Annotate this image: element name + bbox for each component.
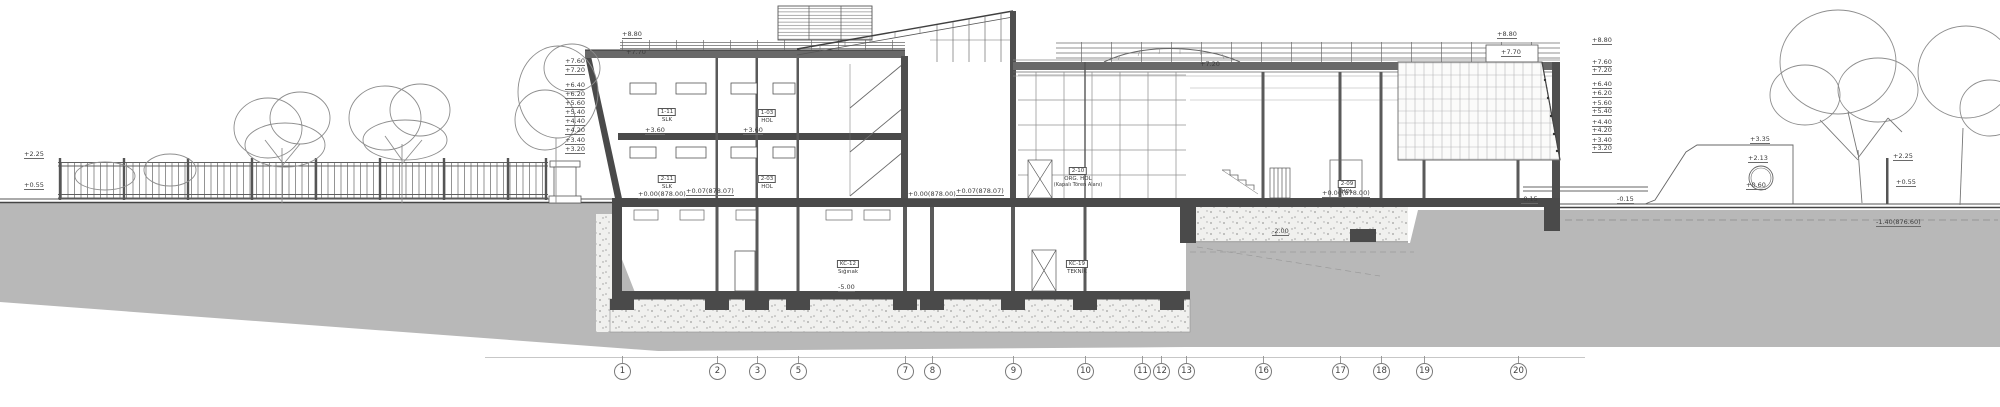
elevation-label-left: +4.40 — [565, 118, 585, 126]
level-annotation: +0.07(878.07) — [686, 188, 734, 196]
level-annotation: +7.70 — [1501, 49, 1521, 57]
room-name: SLK — [658, 184, 676, 190]
grid-leader-stub — [1518, 356, 1519, 363]
level-annotation-text: -5.00 — [838, 284, 855, 292]
elevation-label-left: +6.20 — [565, 91, 585, 99]
elevation-label-left: +4.20 — [565, 127, 585, 135]
level-annotation-text: -0.15 — [1521, 196, 1538, 204]
level-annotation: +8.80 — [1497, 31, 1517, 39]
elevation-label-left-text: +5.60 — [565, 100, 585, 108]
room-name: HOL — [758, 118, 776, 124]
elevation-label-right: +4.20 — [1592, 127, 1612, 135]
room-name: HOL — [1338, 189, 1356, 195]
elevation-label-left-text: +5.40 — [565, 109, 585, 117]
level-annotation: +3.35 — [1750, 136, 1770, 144]
grid-bubble: 11 — [1134, 363, 1151, 380]
level-annotation: +7.70 — [626, 49, 646, 57]
room-label: 2-03HOL — [758, 166, 776, 191]
level-annotation: +0.00(878.00) — [908, 191, 956, 199]
grid-bubble: 5 — [790, 363, 807, 380]
elevation-label-right-text: +5.40 — [1592, 108, 1612, 116]
elevation-label-left: +5.60 — [565, 100, 585, 108]
elevation-label-left-text: +4.20 — [565, 127, 585, 135]
elevation-label-right: +6.40 — [1592, 81, 1612, 89]
level-annotation-text: +2.25 — [24, 151, 44, 159]
grid-leader-stub — [622, 356, 623, 363]
grid-bubble: 7 — [897, 363, 914, 380]
elevation-label-left: +3.20 — [565, 146, 585, 154]
level-annotation: +2.25 — [24, 151, 44, 159]
room-name: SLK — [658, 117, 676, 123]
grid-leader-stub — [1161, 356, 1162, 363]
grid-leader-stub — [1142, 356, 1143, 363]
level-annotation-text: +8.80 — [1497, 31, 1517, 39]
level-annotation-text: -1.40(876.60) — [1876, 219, 1921, 227]
grid-bubble: 8 — [924, 363, 941, 380]
room-code: KC-19 — [1066, 260, 1088, 268]
grid-bubble: 2 — [709, 363, 726, 380]
level-annotation: -1.40(876.60) — [1876, 219, 1921, 227]
level-annotation: -2.00 — [1272, 228, 1289, 236]
elevation-label-left-text: +4.40 — [565, 118, 585, 126]
elevation-label-left: +3.40 — [565, 137, 585, 145]
level-annotation: +0.55 — [1896, 179, 1916, 187]
room-name: HOL — [758, 184, 776, 190]
elevation-label-right: +6.20 — [1592, 90, 1612, 98]
grid-bubble: 1 — [614, 363, 631, 380]
elevation-label-left: +6.40 — [565, 82, 585, 90]
room-code: 2-11 — [658, 175, 676, 183]
room-code: 2-09 — [1338, 180, 1356, 188]
grid-bubble: 10 — [1077, 363, 1094, 380]
level-annotation-text: +0.00(878.00) — [638, 191, 686, 199]
level-annotation-text: +0.60 — [1746, 182, 1766, 190]
elevation-label-left: +5.40 — [565, 109, 585, 117]
room-code: 2-10 — [1069, 167, 1087, 175]
level-annotation-text: +0.55 — [24, 182, 44, 190]
level-annotation: -5.00 — [838, 284, 855, 292]
level-annotation-text: +3.60 — [743, 127, 763, 135]
level-annotation-text: +0.07(878.07) — [956, 188, 1004, 196]
elevation-label-right-text: +8.80 — [1592, 37, 1612, 45]
elevation-label-right: +3.20 — [1592, 145, 1612, 153]
level-annotation-text: +0.07(878.07) — [686, 188, 734, 196]
grid-bubble: 12 — [1153, 363, 1170, 380]
grid-baseline — [485, 357, 1585, 358]
level-annotation: +0.00(878.00) — [638, 191, 686, 199]
grid-bubble: 19 — [1416, 363, 1433, 380]
level-annotation-text: +0.00(878.00) — [908, 191, 956, 199]
annotation-overlay: +7.60+7.20+6.40+6.20+5.60+5.40+4.40+4.20… — [0, 0, 2000, 407]
grid-leader-stub — [1186, 356, 1187, 363]
level-annotation-text: +8.80 — [622, 31, 642, 39]
room-label: KC-12Sığınak — [837, 251, 859, 276]
level-annotation: +2.25 — [1893, 153, 1913, 161]
grid-bubble: 9 — [1005, 363, 1022, 380]
level-annotation: +3.60 — [743, 127, 763, 135]
grid-bubble: 16 — [1255, 363, 1272, 380]
level-annotation-text: +2.25 — [1893, 153, 1913, 161]
grid-leader-stub — [1381, 356, 1382, 363]
room-code: KC-12 — [837, 260, 859, 268]
grid-leader-stub — [1085, 356, 1086, 363]
elevation-label-left-text: +3.20 — [565, 146, 585, 154]
section-drawing-sheet: +7.60+7.20+6.40+6.20+5.60+5.40+4.40+4.20… — [0, 0, 2000, 407]
level-annotation-text: +2.13 — [1748, 155, 1768, 163]
grid-bubble: 18 — [1373, 363, 1390, 380]
elevation-label-left: +7.60 — [565, 58, 585, 66]
level-annotation-text: +7.70 — [626, 49, 646, 57]
elevation-label-right-text: +3.20 — [1592, 145, 1612, 153]
level-annotation-text: -2.00 — [1272, 228, 1289, 236]
room-extra: (Kapalı Tören Alanı) — [1054, 183, 1102, 189]
level-annotation: +7.20 — [1200, 61, 1220, 69]
elevation-label-right-text: +6.40 — [1592, 81, 1612, 89]
level-annotation-text: -0.15 — [1617, 196, 1634, 204]
level-annotation: +0.07(878.07) — [956, 188, 1004, 196]
grid-bubble: 17 — [1332, 363, 1349, 380]
level-annotation-text: +7.20 — [1200, 61, 1220, 69]
level-annotation: +0.60 — [1746, 182, 1766, 190]
room-code: 1-03 — [758, 109, 776, 117]
level-annotation-text: +3.35 — [1750, 136, 1770, 144]
level-annotation: +8.80 — [622, 31, 642, 39]
grid-leader-stub — [905, 356, 906, 363]
level-annotation-text: +3.60 — [645, 127, 665, 135]
elevation-label-left: +7.20 — [565, 67, 585, 75]
room-name: TEKNİK — [1066, 269, 1088, 275]
elevation-label-right: +5.40 — [1592, 108, 1612, 116]
room-code: 1-11 — [658, 108, 676, 116]
elevation-label-left-text: +6.20 — [565, 91, 585, 99]
room-label: 2-11SLK — [658, 166, 676, 191]
room-label: 1-11SLK — [658, 99, 676, 124]
level-annotation: -0.15 — [1521, 196, 1538, 204]
elevation-label-right-text: +7.20 — [1592, 67, 1612, 75]
room-label: 2-10ORG. HOL(Kapalı Tören Alanı) — [1054, 158, 1102, 188]
grid-leader-stub — [717, 356, 718, 363]
elevation-label-right-text: +4.20 — [1592, 127, 1612, 135]
grid-leader-stub — [1013, 356, 1014, 363]
grid-bubble: 20 — [1510, 363, 1527, 380]
grid-bubble: 13 — [1178, 363, 1195, 380]
elevation-label-left-text: +3.40 — [565, 137, 585, 145]
grid-leader-stub — [1424, 356, 1425, 363]
level-annotation-text: +7.70 — [1501, 49, 1521, 57]
room-label: KC-19TEKNİK — [1066, 251, 1088, 276]
room-code: 2-03 — [758, 175, 776, 183]
elevation-label-right-text: +6.20 — [1592, 90, 1612, 98]
elevation-label-right: +7.20 — [1592, 67, 1612, 75]
level-annotation-text: +0.55 — [1896, 179, 1916, 187]
grid-leader-stub — [932, 356, 933, 363]
elevation-label-left-text: +7.60 — [565, 58, 585, 66]
grid-leader-stub — [757, 356, 758, 363]
level-annotation: +3.60 — [645, 127, 665, 135]
grid-leader-stub — [1263, 356, 1264, 363]
level-annotation: +0.55 — [24, 182, 44, 190]
grid-bubble: 3 — [749, 363, 766, 380]
level-annotation: +2.13 — [1748, 155, 1768, 163]
elevation-label-left-text: +7.20 — [565, 67, 585, 75]
room-name: Sığınak — [837, 269, 859, 275]
level-annotation: -0.15 — [1617, 196, 1634, 204]
room-label: 1-03HOL — [758, 100, 776, 125]
grid-leader-stub — [1340, 356, 1341, 363]
grid-leader-stub — [798, 356, 799, 363]
elevation-label-right: +8.80 — [1592, 37, 1612, 45]
room-label: 2-09HOL — [1338, 171, 1356, 196]
elevation-label-left-text: +6.40 — [565, 82, 585, 90]
